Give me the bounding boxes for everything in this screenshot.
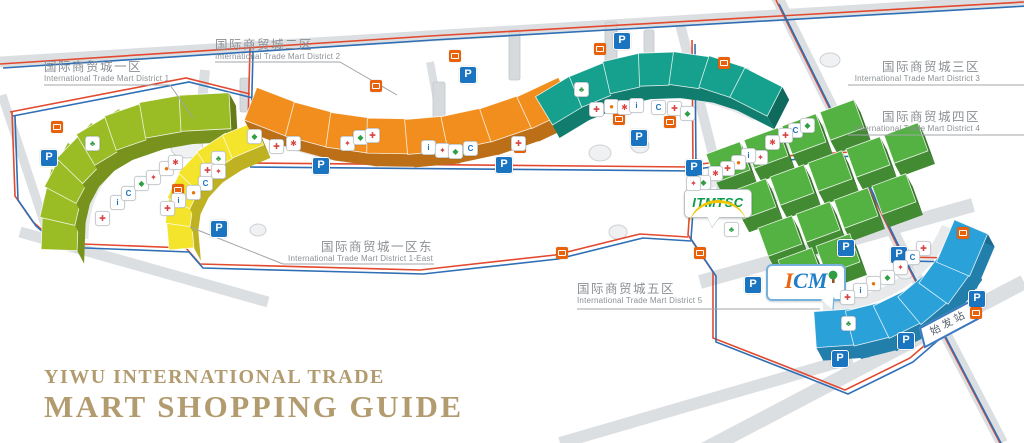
district-1-east-name-en: International Trade Mart District 1-East — [288, 255, 433, 264]
first-aid-icon: ✚ — [95, 211, 110, 226]
district-5-name-en: International Trade Mart District 5 — [577, 297, 702, 306]
bus-stop-icon — [718, 57, 730, 69]
district-2-name-zh: 国际商贸城二区 — [215, 39, 340, 53]
bus-stop-icon — [449, 50, 461, 62]
first-aid-icon: ✚ — [840, 290, 855, 305]
parking-sign: P — [459, 66, 477, 84]
district-4-name-en: International Trade Mart District 4 — [855, 125, 980, 134]
parking-sign: P — [837, 239, 855, 257]
escalator-icon: ◆ — [247, 129, 262, 144]
district-5-name-zh: 国际商贸城五区 — [577, 283, 702, 297]
map-title-line1: YIWU INTERNATIONAL TRADE — [44, 366, 464, 389]
atm-icon: C — [651, 100, 666, 115]
icm-logo-text-i: I — [785, 268, 794, 293]
first-aid-icon: ✚ — [269, 139, 284, 154]
parking-sign: P — [312, 157, 330, 175]
parking-sign: P — [495, 156, 513, 174]
medical-icon: ✱ — [168, 155, 183, 170]
district-1-name-en: International Trade Mart District 1 — [44, 75, 169, 84]
first-aid-icon: ✚ — [778, 128, 793, 143]
bus-stop-icon — [51, 121, 63, 133]
pharmacy-icon: ♣ — [724, 222, 739, 237]
parking-sign: P — [744, 276, 762, 294]
icm-logo-bubble: ICM — [766, 264, 846, 301]
tree-icon — [827, 270, 839, 284]
restroom-icon: ✦ — [211, 164, 226, 179]
district-2-name-en: International Trade Mart District 2 — [215, 53, 340, 62]
first-aid-icon: ✚ — [511, 136, 526, 151]
map-canvas: 国际商贸城一区 International Trade Mart Distric… — [0, 0, 1024, 443]
parking-sign: P — [897, 332, 915, 350]
food-icon: ● — [866, 276, 881, 291]
label-district-3: 国际商贸城三区 International Trade Mart Distric… — [855, 61, 980, 83]
info-icon: i — [629, 98, 644, 113]
info-icon: i — [853, 283, 868, 298]
parking-sign: P — [831, 350, 849, 368]
pharmacy-icon: ♣ — [85, 136, 100, 151]
district-3-name-en: International Trade Mart District 3 — [855, 75, 980, 84]
food-icon: ● — [186, 185, 201, 200]
escalator-icon: ◆ — [880, 270, 895, 285]
bubble-tail — [821, 297, 837, 312]
district-1-name-zh: 国际商贸城一区 — [44, 61, 169, 75]
bus-stop-icon — [664, 116, 676, 128]
parking-sign: P — [968, 290, 986, 308]
escalator-icon: ◆ — [800, 118, 815, 133]
label-district-5: 国际商贸城五区 International Trade Mart Distric… — [577, 283, 702, 305]
district-3-name-zh: 国际商贸城三区 — [855, 61, 980, 75]
label-district-4: 国际商贸城四区 International Trade Mart Distric… — [855, 111, 980, 133]
info-icon: i — [421, 140, 436, 155]
label-district-1: 国际商贸城一区 International Trade Mart Distric… — [44, 61, 169, 83]
district-1-east-name-zh: 国际商贸城一区东 — [288, 241, 433, 255]
medical-icon: ✱ — [765, 135, 780, 150]
parking-sign: P — [613, 32, 631, 50]
restroom-icon: ✦ — [893, 260, 908, 275]
bus-stop-icon — [370, 80, 382, 92]
label-district-2: 国际商贸城二区 International Trade Mart Distric… — [215, 39, 340, 61]
district-4-name-zh: 国际商贸城四区 — [855, 111, 980, 125]
map-title-line2: MART SHOPPING GUIDE — [44, 389, 464, 425]
bus-stop-icon — [556, 247, 568, 259]
restroom-icon: ✦ — [686, 176, 701, 191]
escalator-icon: ◆ — [448, 144, 463, 159]
bus-stop-icon — [594, 43, 606, 55]
medical-icon: ✱ — [286, 136, 301, 151]
pharmacy-icon: ♣ — [841, 316, 856, 331]
first-aid-icon: ✚ — [160, 201, 175, 216]
itmtsc-logo-bubble: ITMTSC — [684, 189, 752, 218]
bus-stop-icon — [957, 227, 969, 239]
pharmacy-icon: ♣ — [574, 82, 589, 97]
parking-sign: P — [210, 220, 228, 238]
map-overlay: 国际商贸城一区 International Trade Mart Distric… — [0, 0, 1024, 443]
escalator-icon: ◆ — [680, 106, 695, 121]
map-title: YIWU INTERNATIONAL TRADE MART SHOPPING G… — [44, 366, 464, 425]
label-district-1-east: 国际商贸城一区东 International Trade Mart Distri… — [288, 241, 433, 263]
atm-icon: C — [463, 141, 478, 156]
bus-stop-icon — [970, 307, 982, 319]
first-aid-icon: ✚ — [365, 128, 380, 143]
icm-logo-text-cm: CM — [793, 268, 827, 293]
first-aid-icon: ✚ — [589, 102, 604, 117]
parking-sign: P — [40, 149, 58, 167]
bubble-tail — [707, 216, 720, 227]
parking-sign: P — [630, 129, 648, 147]
bus-stop-icon — [694, 247, 706, 259]
itmtsc-logo-text: ITMTSC — [685, 190, 751, 216]
